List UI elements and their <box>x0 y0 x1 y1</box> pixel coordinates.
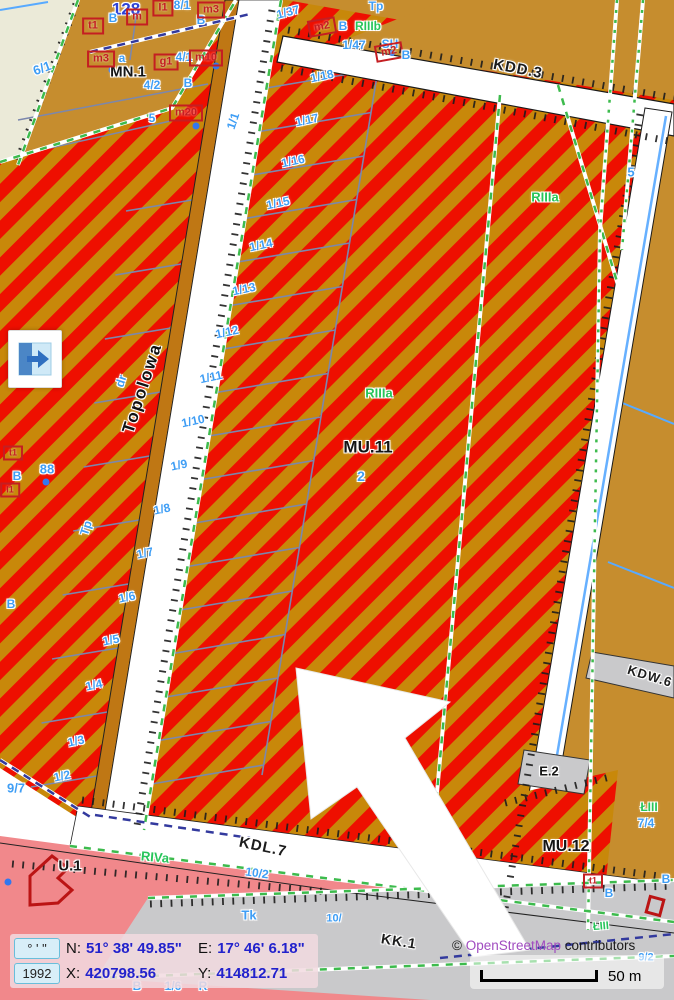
osm-link[interactable]: OpenStreetMap <box>466 938 561 953</box>
map-label: 1/7 <box>136 545 155 560</box>
x-coordinate: X: 420798.56 <box>66 965 198 982</box>
map-label: 1/5 <box>102 632 121 647</box>
east-value: 17° 46' 6.18" <box>217 940 305 957</box>
map-label: m3 <box>197 2 225 19</box>
map-label: ŁIII <box>640 801 657 813</box>
map-label: t1 <box>82 18 104 35</box>
scalebar-label: 50 m <box>608 969 641 984</box>
map-label: 1/47 <box>342 39 365 51</box>
map-label: 5 <box>627 166 634 179</box>
map-label: B <box>339 20 348 32</box>
panel-expand-arrow-icon <box>17 340 53 378</box>
map-label: 1/2 <box>53 768 72 783</box>
north-value: 51° 38' 49.85" <box>86 940 182 957</box>
map-label: 5 <box>149 112 156 124</box>
map-label: t1 <box>583 874 603 889</box>
expand-sidebar-button[interactable] <box>8 330 62 388</box>
map-label: B <box>109 12 118 24</box>
map-label: I1 <box>0 483 20 498</box>
map-label: m10 <box>189 50 223 67</box>
map-label: RIIIa <box>531 191 558 204</box>
map-label: E.2 <box>539 765 559 778</box>
map-attribution: © OpenStreetMap contributors <box>452 938 635 953</box>
east-coordinate: E: 17° 46' 6.18" <box>198 940 314 957</box>
y-value: 414812.71 <box>216 965 287 982</box>
map-label: 1/9 <box>170 457 189 472</box>
map-label: B <box>13 470 22 482</box>
map-label: Tk <box>241 909 256 922</box>
coordinate-statusbar: ° ' " N: 51° 38' 49.85" E: 17° 46' 6.18"… <box>10 934 318 988</box>
map-label: m3 <box>87 51 115 68</box>
map-label: I1 <box>152 0 173 17</box>
map-label: ŁIII <box>593 921 610 933</box>
map-label: B <box>402 49 411 61</box>
map-label: 10/ <box>326 914 341 925</box>
map-label: B <box>184 77 193 89</box>
crs-1992-button[interactable]: 1992 <box>14 963 60 984</box>
map-label: 8/1 <box>174 0 191 11</box>
north-coordinate: N: 51° 38' 49.85" <box>66 940 198 957</box>
map-label: 2 <box>357 469 365 483</box>
map-label: 7/4 <box>638 817 655 829</box>
dms-format-button[interactable]: ° ' " <box>14 938 60 959</box>
map-label: U.1 <box>58 859 81 874</box>
map-label: 1/3 <box>67 733 86 748</box>
x-value: 420798.56 <box>85 965 156 982</box>
scalebar-container: 50 m <box>470 955 664 989</box>
map-label: 1/6 <box>118 589 137 604</box>
map-label: m20 <box>169 105 203 122</box>
y-coordinate: Y: 414812.71 <box>198 965 314 982</box>
map-label: Tp <box>369 0 384 12</box>
map-label: 88 <box>40 463 54 476</box>
map-label: RIVa <box>140 849 169 864</box>
map-label: RIIIb <box>355 20 381 32</box>
map-label: B <box>7 598 16 610</box>
map-label: 10/2 <box>245 865 270 880</box>
map-label: 4/2 <box>144 79 161 91</box>
map-label: RIIIa <box>365 387 392 400</box>
map-label: B <box>605 887 614 899</box>
map-label: B <box>662 873 671 885</box>
map-label: MN.1 <box>110 65 146 80</box>
map-label: 1/4 <box>85 677 104 692</box>
map-label: MU.12 <box>542 839 589 855</box>
map-label: 1/8 <box>153 501 172 516</box>
map-label: a <box>119 52 126 64</box>
map-label: 9/7 <box>7 782 25 795</box>
map-label: m <box>126 9 148 26</box>
map-label: t1 <box>3 446 23 461</box>
map-viewer: 1288/1BBmI1m3t1MN.1m3ag14/1m104/2B5m206/… <box>0 0 674 1000</box>
scalebar <box>480 970 598 982</box>
map-label: MU.11 <box>343 439 392 456</box>
